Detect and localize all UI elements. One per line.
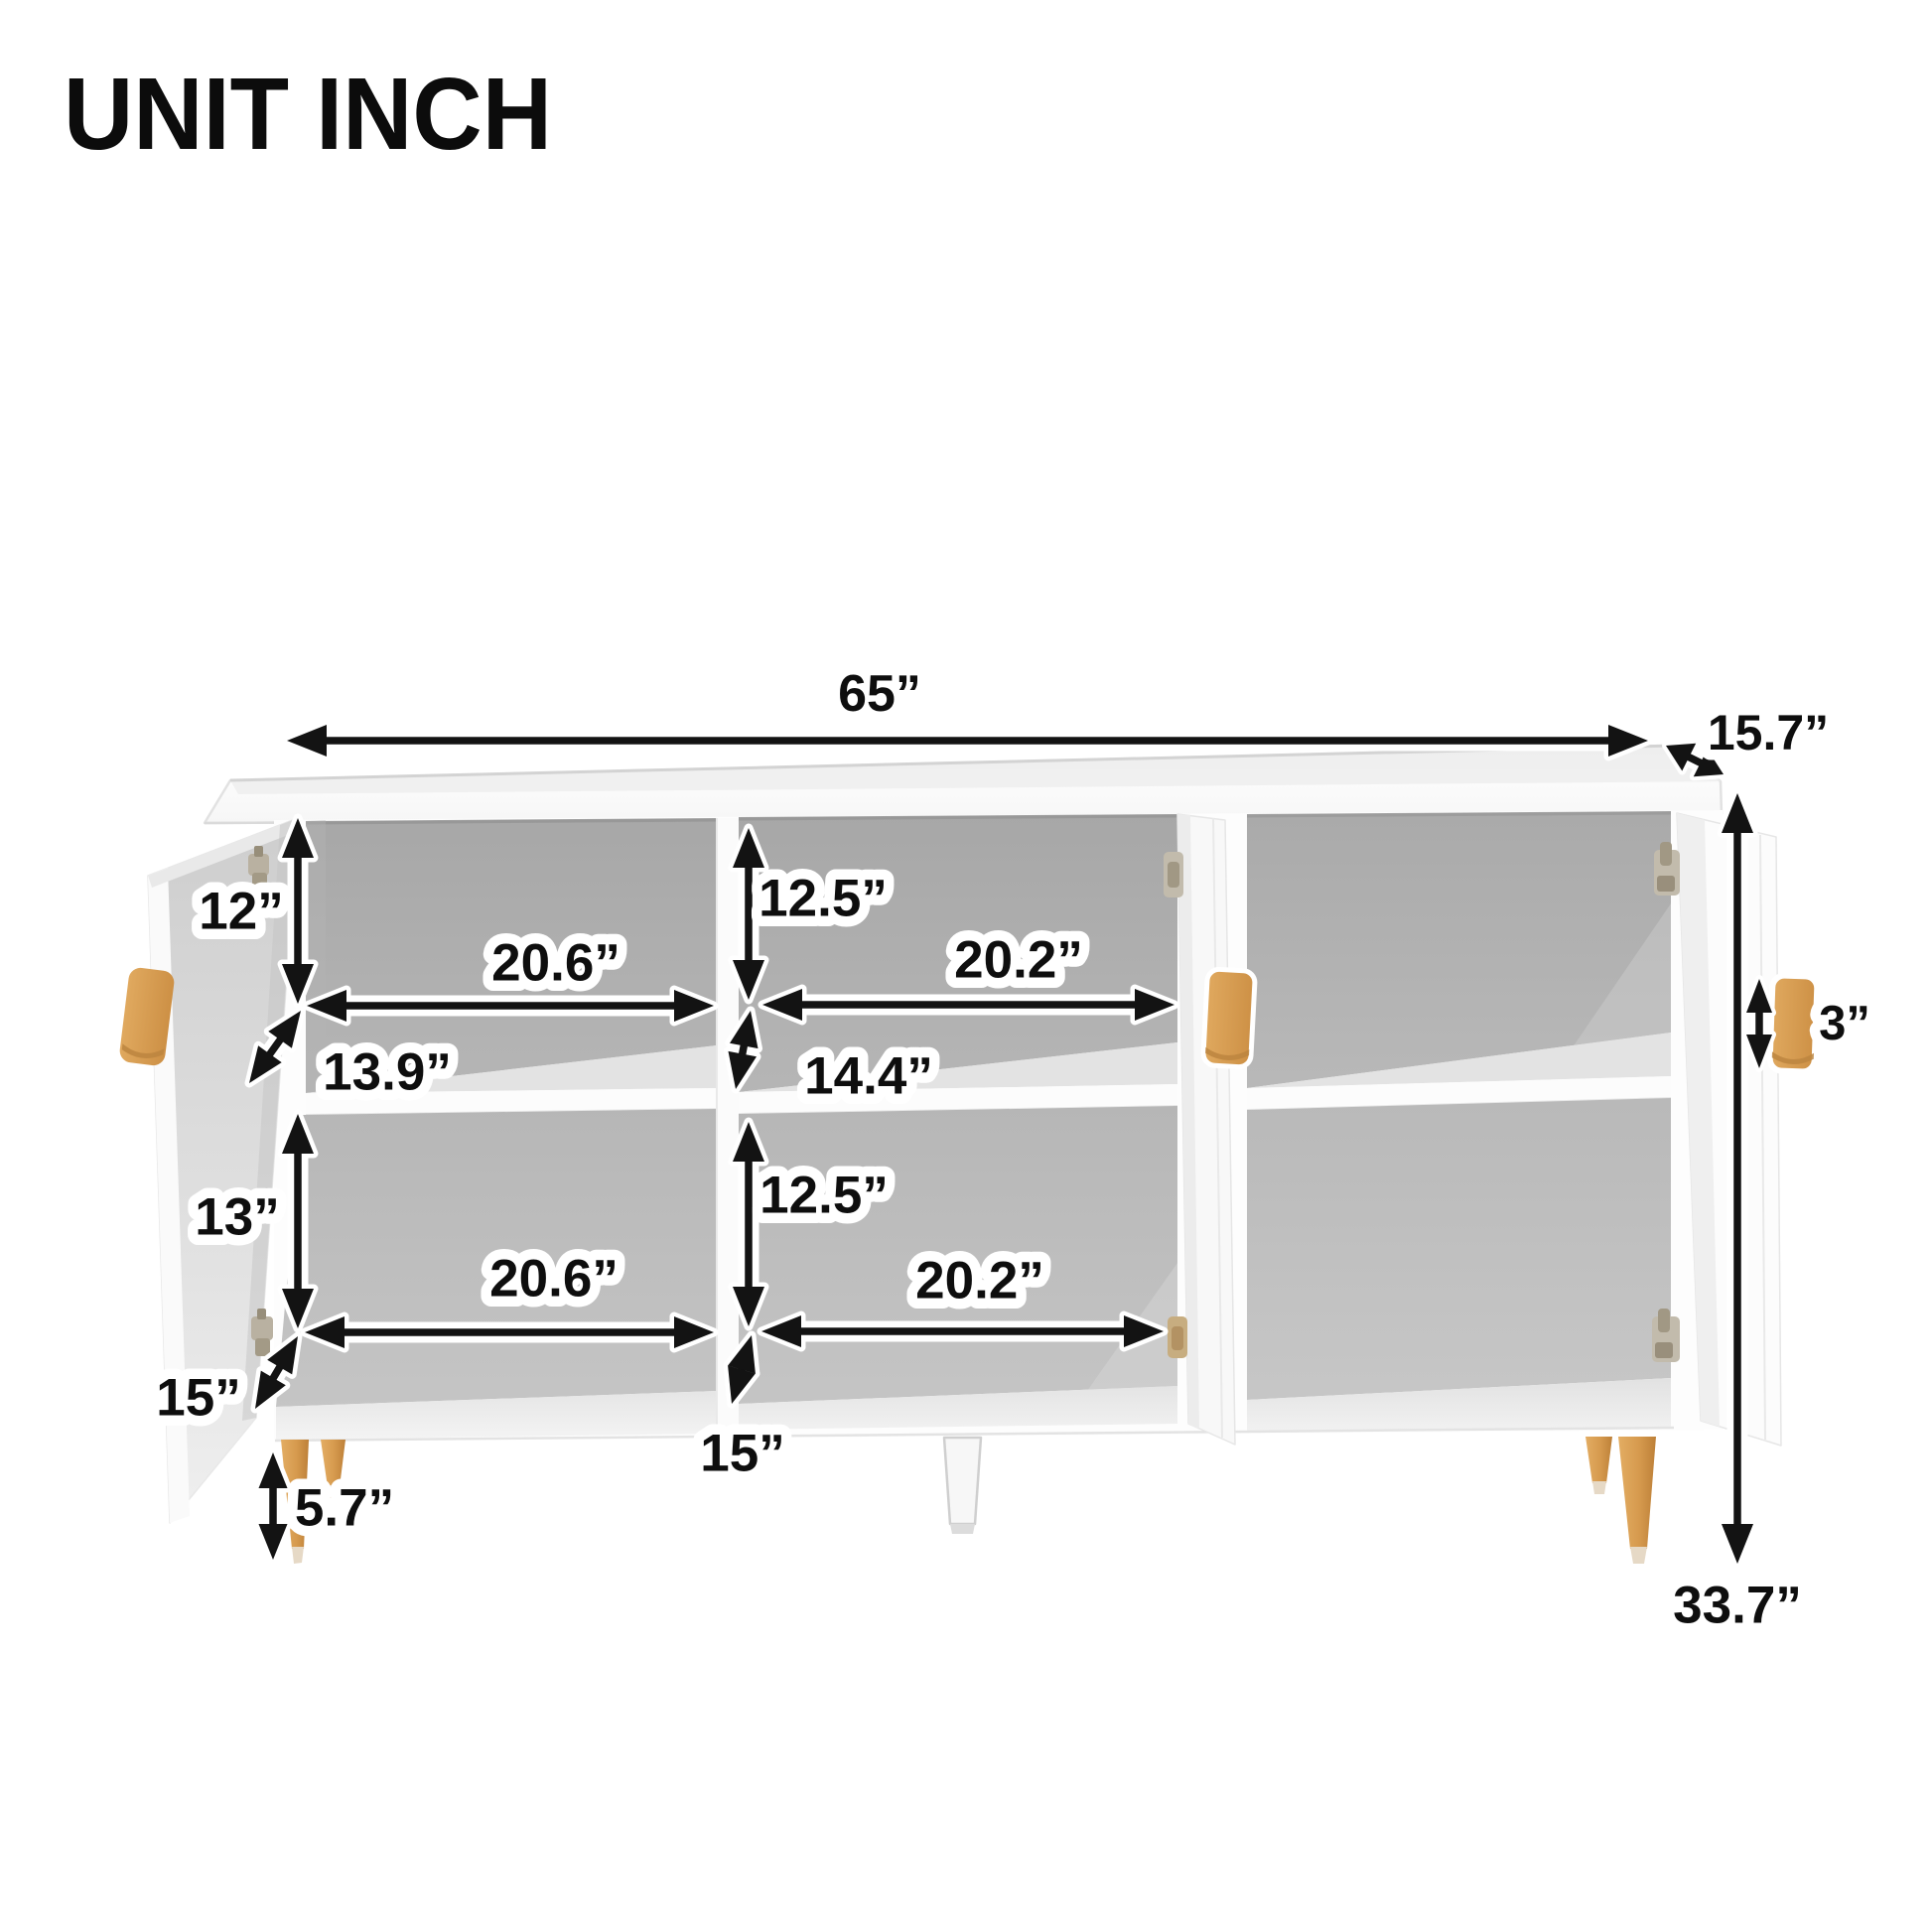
- svg-text:12.5”: 12.5”: [759, 1167, 889, 1225]
- svg-text:33.7”: 33.7”: [1673, 1577, 1802, 1635]
- svg-text:15.7”: 15.7”: [1708, 705, 1829, 760]
- svg-text:20.6”: 20.6”: [489, 1250, 619, 1309]
- svg-text:65”: 65”: [838, 665, 921, 723]
- svg-text:12.5”: 12.5”: [759, 870, 888, 928]
- svg-text:UNIT INCH: UNIT INCH: [64, 57, 552, 171]
- svg-text:3”: 3”: [1819, 997, 1870, 1050]
- svg-text:5.7”: 5.7”: [295, 1479, 394, 1538]
- svg-text:15”: 15”: [156, 1369, 240, 1428]
- svg-text:13.9”: 13.9”: [323, 1043, 452, 1102]
- svg-text:20.6”: 20.6”: [491, 934, 621, 993]
- svg-text:20.2”: 20.2”: [954, 931, 1083, 990]
- svg-text:12”: 12”: [199, 883, 283, 941]
- svg-text:20.2”: 20.2”: [915, 1252, 1044, 1311]
- svg-text:14.4”: 14.4”: [804, 1047, 933, 1106]
- svg-text:13”: 13”: [195, 1188, 279, 1247]
- svg-text:15”: 15”: [700, 1425, 784, 1483]
